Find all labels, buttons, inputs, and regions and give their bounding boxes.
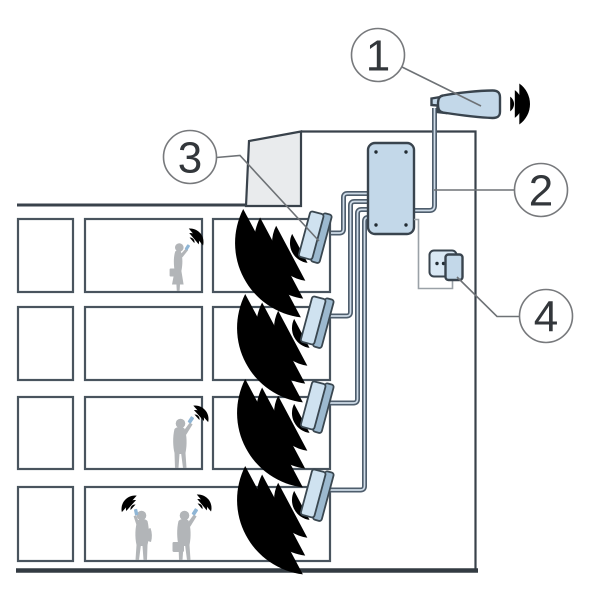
room: [85, 307, 202, 380]
signal-booster-diagram: 1 2 3 4: [0, 0, 600, 600]
room: [18, 307, 73, 380]
power-adapter: [446, 255, 463, 281]
screw-icon: [374, 223, 377, 226]
room: [18, 397, 73, 469]
callout-number-3: 3: [178, 134, 202, 183]
diagram-page: 1 2 3 4: [0, 0, 600, 600]
callout-pointer-4: [457, 277, 519, 317]
screw-icon: [404, 150, 407, 153]
cable-outdoor-antenna: [414, 108, 435, 211]
antenna-body: [438, 91, 500, 119]
callout-number-2: 2: [529, 167, 553, 216]
screw-icon: [374, 150, 377, 153]
callout-number-4: 4: [534, 293, 558, 342]
power-outlet: [414, 220, 463, 289]
screw-icon: [404, 223, 407, 226]
roof-bulkhead: [246, 132, 301, 207]
briefcase: [173, 542, 185, 552]
room: [18, 487, 73, 561]
booster-box: [368, 143, 414, 234]
callout-number-1: 1: [366, 32, 390, 81]
room: [85, 219, 202, 292]
socket-hole-icon: [435, 262, 438, 265]
room: [18, 219, 73, 292]
outdoor-signal-wave-icon: [510, 84, 530, 125]
